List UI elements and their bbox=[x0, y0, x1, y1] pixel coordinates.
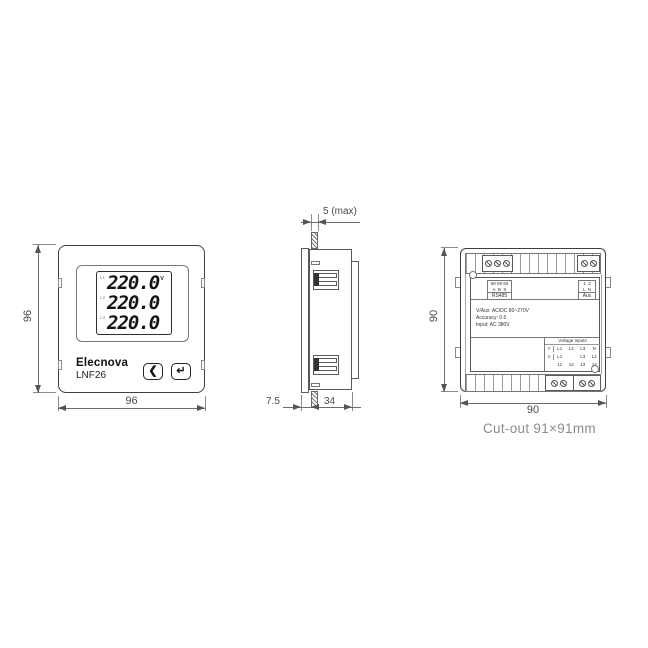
table-cell: 13 bbox=[577, 362, 589, 368]
lcd-value: 220.0 bbox=[107, 293, 159, 313]
inner-edge-line bbox=[465, 274, 466, 374]
arrowhead bbox=[35, 385, 41, 393]
enter-button: ↵ bbox=[171, 363, 191, 380]
screw-terminal-icon bbox=[590, 260, 597, 267]
screw-terminal-icon bbox=[560, 380, 567, 387]
clip-spring bbox=[317, 358, 337, 363]
screw-terminal-icon bbox=[579, 380, 586, 387]
mount-slot-mark bbox=[201, 360, 205, 370]
dim-panel-thickness-label: 5 (max) bbox=[323, 206, 357, 217]
arrowhead bbox=[441, 248, 447, 256]
arrowhead bbox=[441, 384, 447, 392]
front-view-body: L1 220.0 V L2 220.0 L3 220.0 Elecnova LN… bbox=[58, 245, 205, 393]
table-cell: L3 bbox=[577, 354, 589, 360]
table-cell: 12 bbox=[566, 362, 578, 368]
dim-body-depth-label: 34 bbox=[324, 396, 335, 407]
spec-line-aux-supply: V/Aux: AC/DC 80~270V bbox=[476, 308, 529, 315]
extension-line bbox=[205, 396, 206, 411]
screw-terminal-icon bbox=[581, 260, 588, 267]
terminal-pair bbox=[573, 376, 601, 390]
arrowhead bbox=[293, 404, 301, 410]
rating-label-panel: 58 59 60 A B S RS485 1 2 L N Aux V/Aux: … bbox=[470, 277, 600, 372]
clip-spring bbox=[317, 281, 337, 286]
clip-spring bbox=[317, 366, 337, 371]
clip-block bbox=[314, 358, 319, 371]
inner-edge-line bbox=[601, 274, 602, 374]
panel-section-hatch-top bbox=[311, 232, 318, 249]
arrowhead bbox=[311, 404, 319, 410]
spec-line-accuracy: Accuracy: 0.5 bbox=[476, 315, 529, 322]
arrowhead bbox=[35, 245, 41, 253]
dim-back-width-label: 90 bbox=[460, 404, 606, 416]
arrowhead bbox=[344, 404, 352, 410]
terminal-block-aux bbox=[577, 255, 600, 272]
dimension-line-back-height bbox=[444, 248, 445, 392]
table-cell: L1 bbox=[554, 354, 566, 360]
screw-terminal-icon bbox=[551, 380, 558, 387]
lcd-row: L3 220.0 bbox=[99, 313, 169, 333]
mount-slot-mark bbox=[58, 278, 62, 288]
dim-bezel-depth-label: 7.5 bbox=[266, 396, 280, 407]
aux-label: Aux bbox=[578, 292, 596, 300]
spec-text-block: V/Aux: AC/DC 80~270V Accuracy: 0.5 Input… bbox=[476, 308, 529, 329]
side-tab bbox=[311, 383, 320, 387]
phase-label: L1 bbox=[100, 275, 105, 280]
technical-drawing-canvas: L1 220.0 V L2 220.0 L3 220.0 Elecnova LN… bbox=[0, 0, 648, 648]
connection-symbol: V bbox=[545, 354, 554, 360]
fixing-hole bbox=[591, 365, 599, 373]
clip-block bbox=[314, 273, 319, 286]
screw-terminal-icon bbox=[494, 260, 501, 267]
left-arrow-icon: ❮ bbox=[148, 366, 157, 377]
table-cell: L2 bbox=[566, 346, 578, 352]
side-body-step bbox=[352, 261, 359, 379]
dimension-line-front-width bbox=[58, 408, 205, 409]
cutout-note: Cut-out 91×91mm bbox=[483, 421, 596, 436]
fixing-hole bbox=[469, 271, 477, 279]
phase-label: L3 bbox=[100, 315, 105, 320]
phase-label: L2 bbox=[100, 295, 105, 300]
clip-spring bbox=[317, 273, 337, 278]
side-tab bbox=[311, 261, 320, 265]
back-button: ❮ bbox=[143, 363, 163, 380]
mount-slot-mark bbox=[58, 360, 62, 370]
screw-terminal-icon bbox=[588, 380, 595, 387]
arrowhead bbox=[303, 219, 311, 225]
table-cell: 11 bbox=[554, 362, 566, 368]
mount-slot-mark bbox=[201, 278, 205, 288]
table-cell: L2 bbox=[589, 354, 601, 360]
enter-icon: ↵ bbox=[176, 366, 185, 377]
arrowhead bbox=[318, 219, 326, 225]
extension-line bbox=[301, 395, 302, 411]
lcd-display: L1 220.0 V L2 220.0 L3 220.0 bbox=[96, 271, 172, 335]
lcd-value: 220.0 bbox=[107, 273, 159, 293]
lcd-unit: V bbox=[160, 276, 164, 282]
terminal-pair bbox=[546, 376, 573, 390]
voltage-table-title: Voltage Inputs bbox=[545, 337, 600, 345]
connection-symbol: Y bbox=[545, 346, 554, 352]
extension-line bbox=[606, 395, 607, 408]
dim-front-height-label: 96 bbox=[22, 306, 34, 326]
brand-logo: Elecnova bbox=[76, 357, 128, 369]
spec-line-input: Input: AC 380V bbox=[476, 322, 529, 329]
dim-front-width-label: 96 bbox=[58, 395, 205, 407]
extension-line bbox=[352, 392, 353, 411]
lcd-row: L2 220.0 bbox=[99, 293, 169, 313]
model-label: LNF26 bbox=[76, 370, 106, 381]
rs485-label: RS485 bbox=[487, 292, 512, 300]
screw-terminal-icon bbox=[503, 260, 510, 267]
terminal-block-voltage bbox=[545, 375, 601, 391]
side-front-bezel bbox=[301, 248, 309, 393]
table-cell: L3 bbox=[577, 346, 589, 352]
table-cell: N bbox=[589, 346, 601, 352]
lcd-row: L1 220.0 V bbox=[99, 273, 169, 293]
lcd-value: 220.0 bbox=[107, 313, 159, 333]
terminal-block-rs485 bbox=[482, 255, 513, 272]
screw-terminal-icon bbox=[485, 260, 492, 267]
dim-back-height-label: 90 bbox=[428, 306, 440, 326]
dimension-line-front-height bbox=[38, 245, 39, 393]
table-cell: L1 bbox=[554, 346, 566, 352]
display-bezel: L1 220.0 V L2 220.0 L3 220.0 bbox=[76, 265, 189, 342]
